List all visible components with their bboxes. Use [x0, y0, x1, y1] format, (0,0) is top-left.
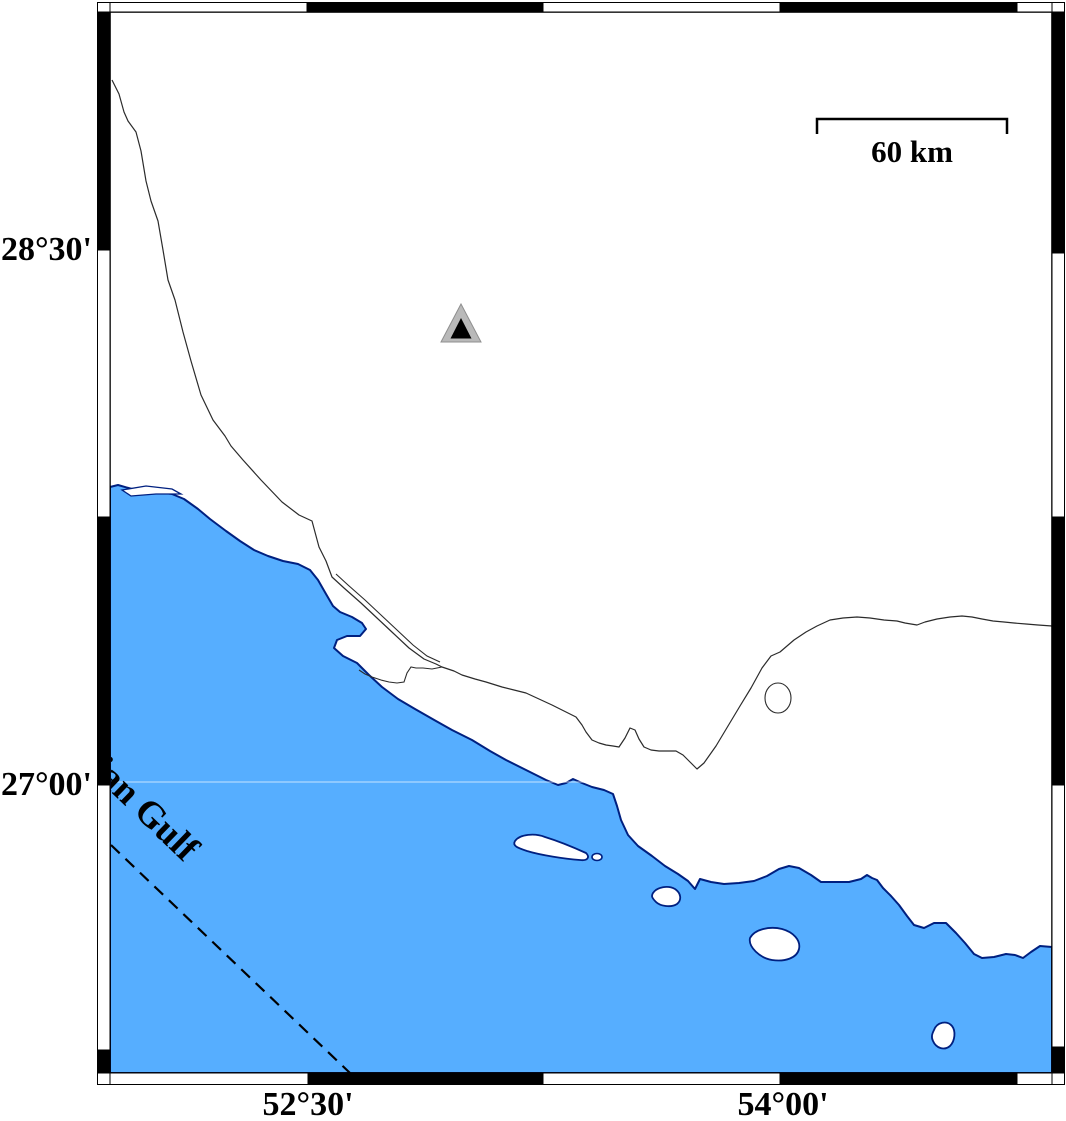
frame-top-band: [110, 3, 1052, 13]
frame-right-band: [1052, 12, 1065, 1073]
frame-left-band: [98, 12, 111, 1073]
islet-tiny: [592, 854, 602, 861]
lat-label-27-00: 27°00': [0, 764, 92, 806]
station-triangle-marker: [441, 304, 481, 342]
island-small: [652, 887, 680, 906]
map-figure: Persian Gulf 28°30' 27°00' 52°30' 54°00'…: [0, 0, 1066, 1121]
frame-bottom-band: [110, 1073, 1052, 1085]
lat-label-28-30: 28°30': [0, 229, 92, 271]
scale-bar: [817, 119, 1007, 134]
boundary-loop: [765, 683, 791, 713]
sea-polygon: [110, 485, 1052, 1073]
lon-label-54-00: 54°00': [693, 1086, 873, 1121]
island-round: [932, 1023, 955, 1049]
scale-bar-label: 60 km: [832, 134, 992, 170]
lon-label-52-30: 52°30': [218, 1086, 398, 1121]
coastal-spit: [122, 486, 181, 496]
